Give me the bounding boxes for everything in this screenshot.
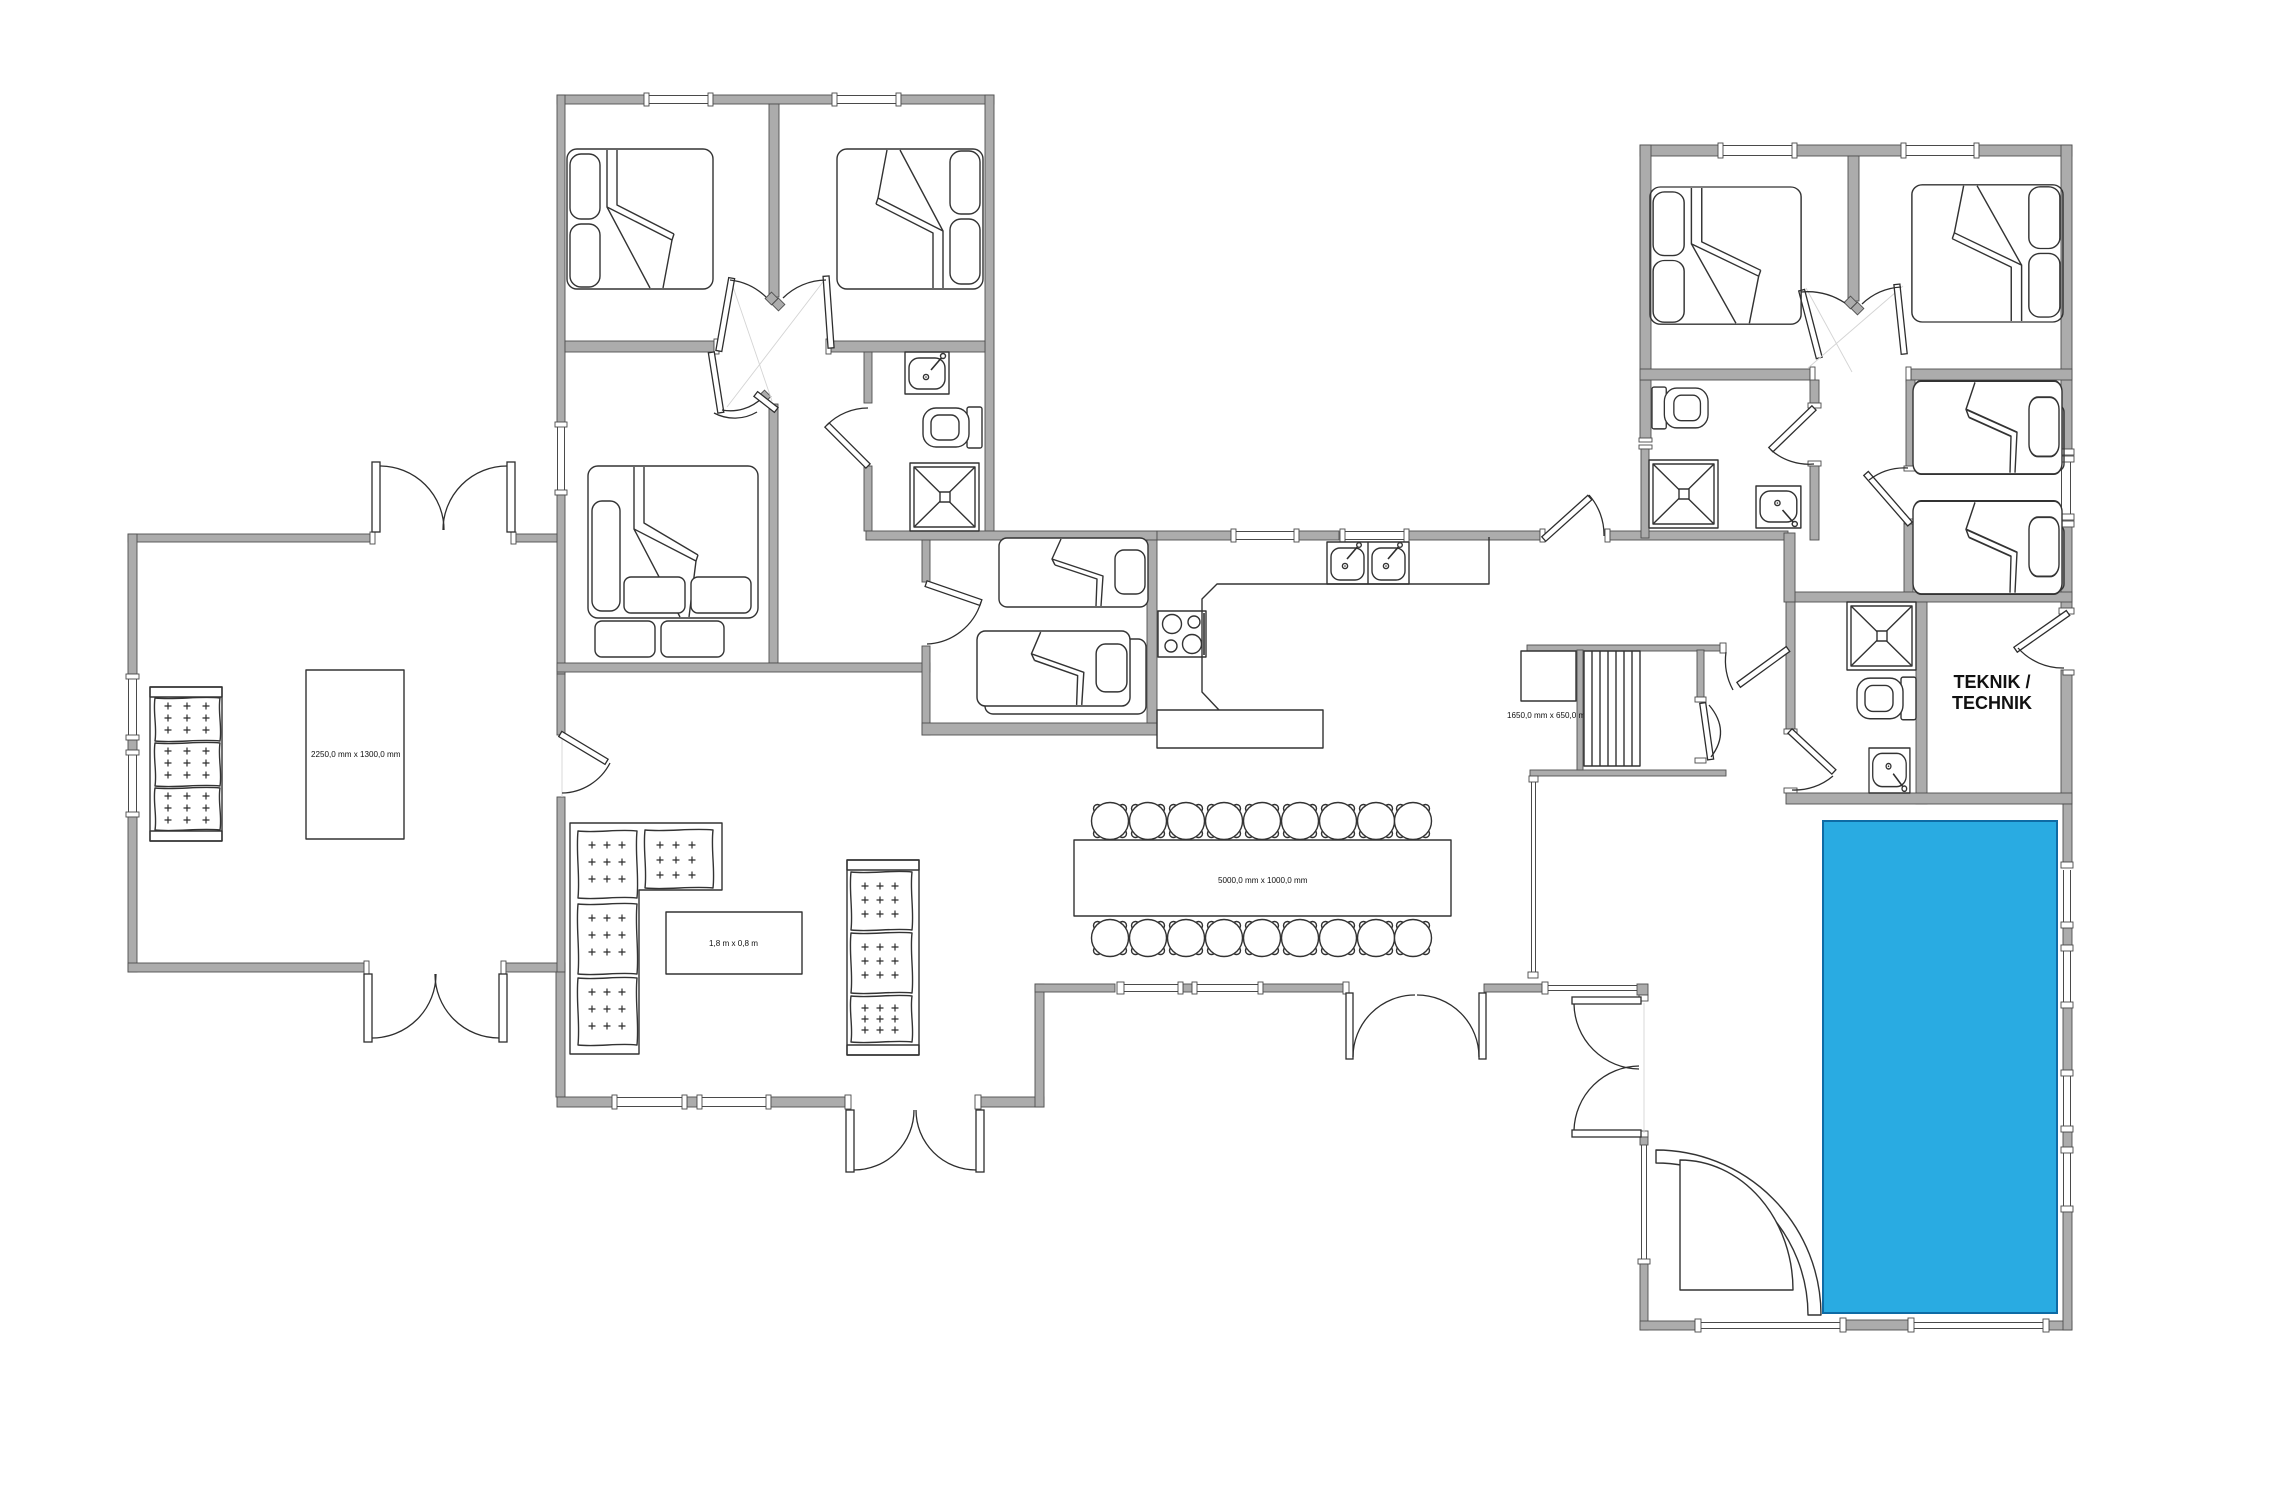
svg-text:1,8 m x 0,8 m: 1,8 m x 0,8 m — [709, 939, 758, 948]
svg-text:2250,0 mm x 1300,0 mm: 2250,0 mm x 1300,0 mm — [311, 750, 401, 759]
svg-text:TECHNIK: TECHNIK — [1952, 693, 2032, 713]
svg-text:5000,0 mm x 1000,0 mm: 5000,0 mm x 1000,0 mm — [1218, 876, 1308, 885]
svg-text:1650,0 mm x 650,0 mm: 1650,0 mm x 650,0 mm — [1507, 711, 1592, 720]
svg-text:TEKNIK /: TEKNIK / — [1953, 672, 2030, 692]
